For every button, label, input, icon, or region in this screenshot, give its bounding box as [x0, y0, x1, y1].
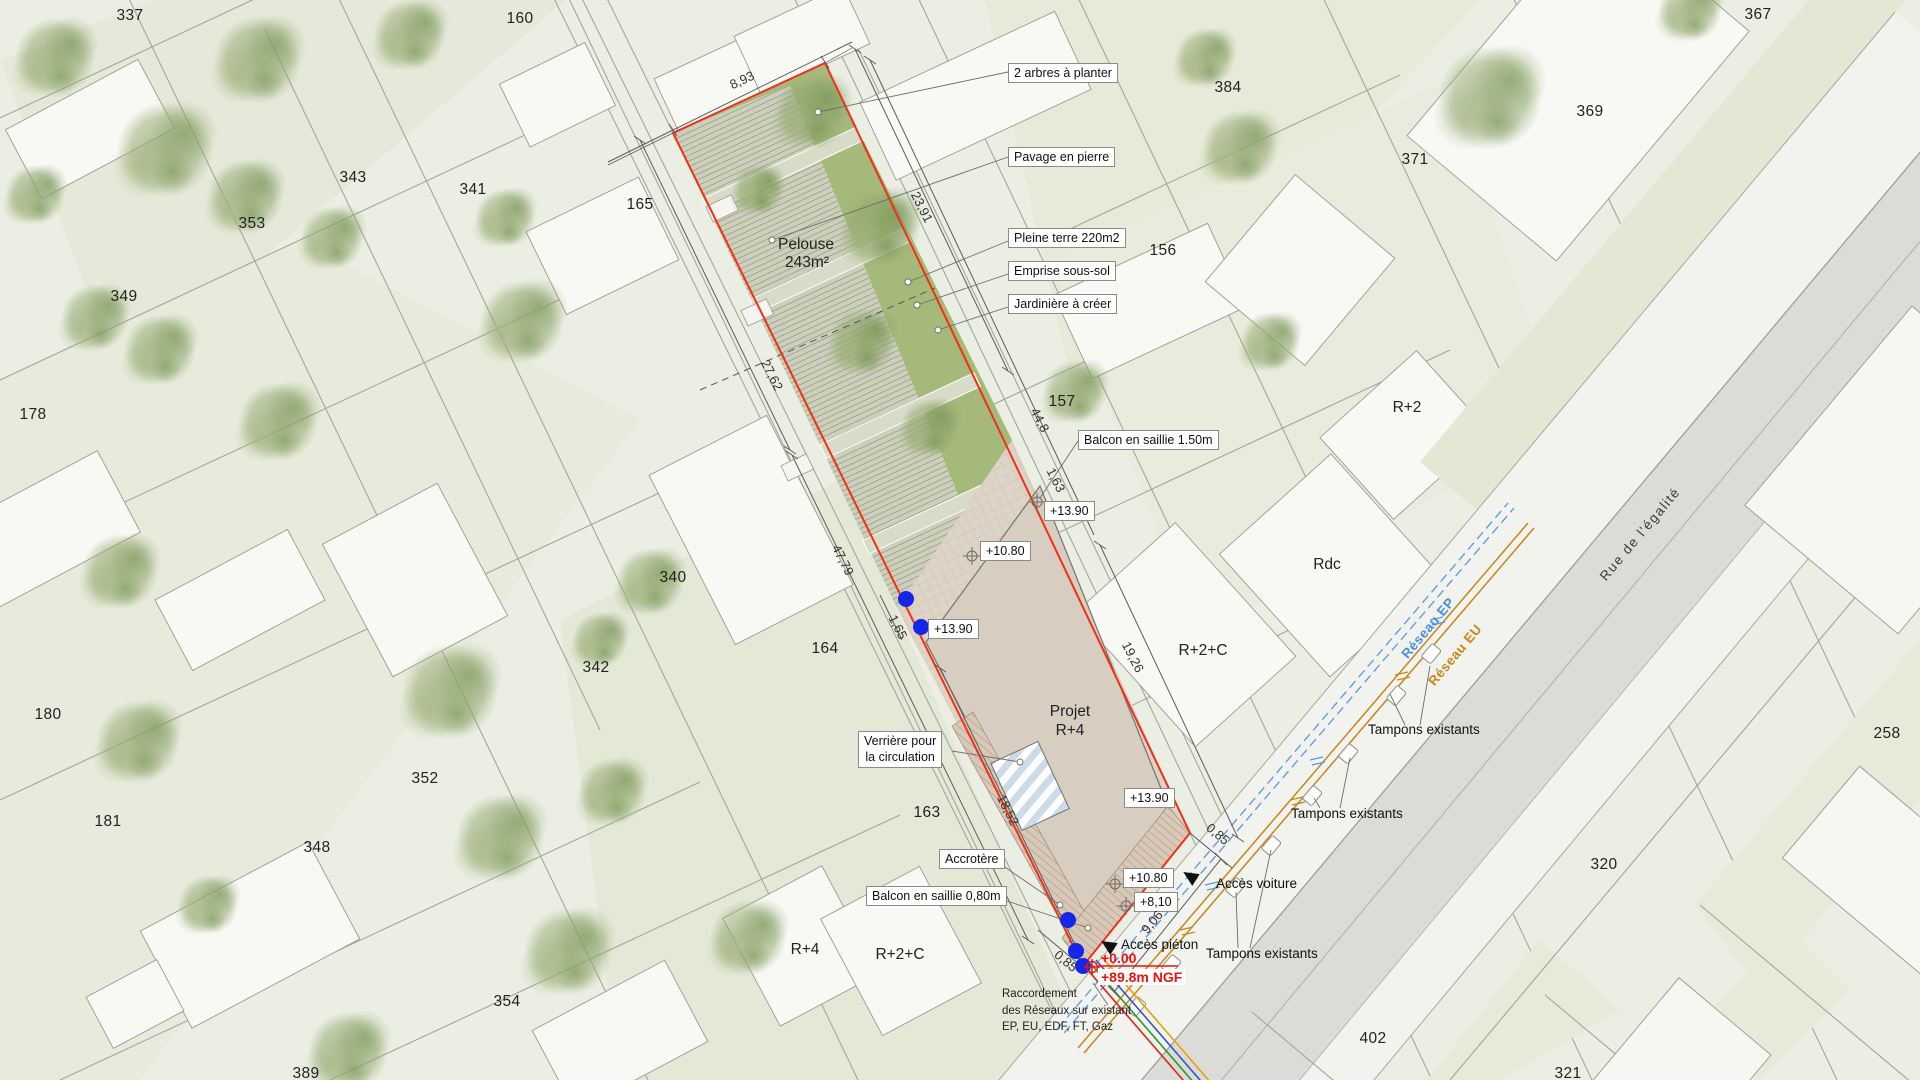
raccordement-line3: EP, EU, EDF, FT, Gaz — [1002, 1021, 1113, 1033]
annotation-balcony-080: Balcon en saillie 0,80m — [866, 886, 1007, 906]
level-000-red: +0.00 — [1101, 950, 1136, 966]
building-label-r4: R+4 — [791, 941, 820, 959]
annotation-basement-footprint: Emprise sous-sol — [1008, 261, 1116, 281]
lawn-label-line2: 243m² — [785, 254, 829, 272]
raccordement-line1: Raccordement — [1002, 988, 1077, 1000]
level-1390-a: +13.90 — [1044, 501, 1095, 521]
annotation-car-access: Accès voiture — [1216, 876, 1297, 891]
parcel-label-163: 163 — [913, 804, 940, 822]
level-1390-c: +13.90 — [1124, 788, 1175, 808]
skylight-line2: la circulation — [865, 750, 934, 764]
annotation-balcony-150: Balcon en saillie 1.50m — [1078, 430, 1219, 450]
parcel-label-337: 337 — [116, 7, 143, 25]
parcel-label-160: 160 — [506, 10, 533, 28]
annotation-pleine-terre: Pleine terre 220m2 — [1008, 228, 1126, 248]
parcel-label-165: 165 — [626, 196, 653, 214]
building-label-rdc: Rdc — [1313, 556, 1341, 574]
level-1390-b: +13.90 — [928, 619, 979, 639]
skylight-line1: Verrière pour — [864, 734, 936, 748]
parcel-label-348: 348 — [303, 839, 330, 857]
parcel-label-341: 341 — [459, 181, 486, 199]
annotation-network-connection: Raccordementdes Réseaux sur existantEP, … — [1002, 986, 1131, 1036]
building-label-r2: R+2 — [1393, 399, 1422, 417]
annotation-stone-paving: Pavage en pierre — [1008, 147, 1115, 167]
annotation-manholes-2: Tampons existants — [1291, 806, 1403, 821]
parcel-label-354: 354 — [493, 993, 520, 1011]
parcel-label-156: 156 — [1149, 242, 1176, 260]
raccordement-line2: des Réseaux sur existant — [1002, 1005, 1131, 1017]
parcel-label-384: 384 — [1214, 79, 1241, 97]
annotation-parapet: Accrotère — [939, 849, 1005, 869]
annotation-manholes-1: Tampons existants — [1368, 722, 1480, 737]
building-label-r2c-low: R+2+C — [875, 946, 924, 964]
annotation-manholes-3: Tampons existants — [1206, 946, 1318, 961]
parcel-label-343: 343 — [339, 169, 366, 187]
parcel-label-164: 164 — [811, 640, 838, 658]
annotation-pedestrian-access: Accès piéton — [1121, 937, 1198, 952]
lawn-label-line1: Pelouse — [778, 236, 834, 254]
parcel-label-367: 367 — [1744, 6, 1771, 24]
parcel-label-178: 178 — [19, 406, 46, 424]
site-plan: 337 160 367 343 353 341 349 384 369 371 … — [0, 0, 1920, 1080]
parcel-label-321: 321 — [1554, 1065, 1581, 1080]
project-title-line1: Projet — [1050, 703, 1091, 721]
parcel-label-352: 352 — [411, 770, 438, 788]
parcel-label-340: 340 — [659, 569, 686, 587]
parcel-label-389: 389 — [292, 1065, 319, 1080]
parcel-label-258: 258 — [1873, 725, 1900, 743]
annotation-planter-to-create: Jardinière à créer — [1008, 294, 1117, 314]
parcel-label-320: 320 — [1590, 856, 1617, 874]
parcel-label-402: 402 — [1359, 1030, 1386, 1048]
parcel-label-349: 349 — [110, 288, 137, 306]
level-1080-b: +10.80 — [1123, 868, 1174, 888]
project-title-line2: R+4 — [1056, 722, 1085, 740]
level-1080-a: +10.80 — [980, 541, 1031, 561]
parcel-label-181: 181 — [94, 813, 121, 831]
parcel-label-353: 353 — [238, 215, 265, 233]
building-label-r2c-mid: R+2+C — [1178, 642, 1227, 660]
annotation-trees-to-plant: 2 arbres à planter — [1008, 63, 1118, 83]
annotation-skylight: Verrière pourla circulation — [858, 731, 942, 768]
parcel-label-342: 342 — [582, 659, 609, 677]
level-ngf-red: +89.8m NGF — [1098, 969, 1185, 985]
parcel-label-371: 371 — [1401, 151, 1428, 169]
parcel-label-369: 369 — [1576, 103, 1603, 121]
parcel-label-157: 157 — [1048, 393, 1075, 411]
parcel-label-180: 180 — [34, 706, 61, 724]
